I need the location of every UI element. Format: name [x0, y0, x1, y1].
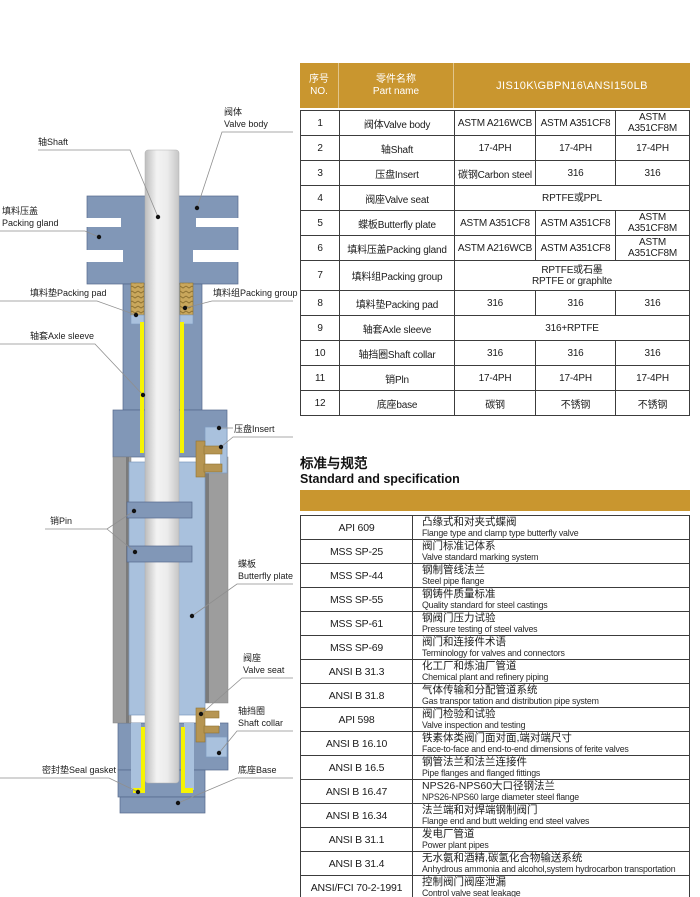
parts-cell-material: ASTM A216WCB — [455, 111, 536, 135]
parts-cell-no: 2 — [301, 136, 340, 160]
parts-cell-material: 17-4PH — [455, 136, 536, 160]
standards-code: ANSI/FCI 70-2-1991 — [301, 876, 413, 897]
standards-desc-en: Valve inspection and testing — [422, 720, 689, 730]
standards-desc-zh: 凸缘式和对夹式蝶阀 — [422, 517, 689, 529]
standards-desc-zh: 发电厂管道 — [422, 829, 689, 841]
parts-cell-material: 碳钢Carbon steel — [455, 161, 536, 185]
standards-desc-en: Terminology for valves and connectors — [422, 648, 689, 658]
parts-cell-material: 316 — [616, 341, 689, 365]
standards-row: ANSI B 16.10铁素体类阀门面对面,端对端尺寸Face-to-face … — [301, 732, 689, 756]
standards-desc: 气体传输和分配管道系统Gas transpor tation and distr… — [413, 684, 689, 707]
parts-cell-name: 轴挡圈Shaft collar — [340, 341, 455, 365]
parts-cell-material-span: RPTFE或石墨RPTFE or graphlte — [455, 261, 689, 290]
standards-code: ANSI B 31.4 — [301, 852, 413, 875]
label-zh: 轴挡圈 — [238, 705, 283, 717]
standards-code: MSS SP-61 — [301, 612, 413, 635]
standards-desc-zh: 阀门检验和试验 — [422, 709, 689, 721]
header-name-en: Part name — [373, 86, 419, 98]
seal-gasket-shape — [181, 788, 193, 793]
label-en: Packing gland — [2, 217, 59, 229]
standards-desc: 钢制管线法兰Steel pipe flange — [413, 564, 689, 587]
standards-title-en: Standard and specification — [300, 472, 460, 487]
parts-table: 序号 NO. 零件名称 Part name JIS10K\GBPN16\ANSI… — [300, 63, 690, 416]
standards-row: MSS SP-61钢阀门压力试验Pressure testing of stee… — [301, 612, 689, 636]
standards-gold-bar — [300, 490, 690, 511]
parts-cell-name: 填料垫Packing pad — [340, 291, 455, 315]
standards-desc-zh: 化工厂和炼油厂管道 — [422, 661, 689, 673]
parts-cell-material: 316 — [616, 291, 689, 315]
parts-cell-material: ASTM A351CF8 — [536, 211, 616, 235]
diagram-label-valve-body: 阀体 Valve body — [224, 106, 268, 130]
diagram-label-butterfly-plate: 蝶板 Butterfly plate — [238, 558, 293, 582]
label-text: 底座Base — [238, 764, 277, 776]
standards-desc: 阀门和连接件术语Terminology for valves and conne… — [413, 636, 689, 659]
diagram-label-shaft: 轴Shaft — [38, 136, 68, 148]
parts-cell-material: 17-4PH — [455, 366, 536, 390]
parts-table-row: 3压盘Insert碳钢Carbon steel316316 — [301, 161, 689, 186]
label-en: Butterfly plate — [238, 570, 293, 582]
parts-cell-no: 3 — [301, 161, 340, 185]
standards-desc-en: Flange type and clamp type butterfly val… — [422, 528, 689, 538]
parts-cell-no: 9 — [301, 316, 340, 340]
standards-desc: 无水氨和酒精,碳氢化合物输送系统Anhydrous ammonia and al… — [413, 852, 689, 875]
parts-cell-no: 5 — [301, 211, 340, 235]
label-en: Valve seat — [243, 664, 284, 676]
label-en: Valve body — [224, 118, 268, 130]
standards-desc-zh: 钢阀门压力试验 — [422, 613, 689, 625]
standards-desc: 凸缘式和对夹式蝶阀Flange type and clamp type butt… — [413, 516, 689, 539]
label-en: Shaft collar — [238, 717, 283, 729]
parts-cell-material: 316 — [536, 161, 616, 185]
parts-cell-name: 阀座Valve seat — [340, 186, 455, 210]
standards-desc-zh: 铁素体类阀门面对面,端对端尺寸 — [422, 733, 689, 745]
parts-table-row: 1阀体Valve bodyASTM A216WCBASTM A351CF8AST… — [301, 111, 689, 136]
parts-cell-material: 不锈钢 — [536, 391, 616, 415]
standards-desc-zh: NPS26-NPS60大口径钢法兰 — [422, 781, 689, 793]
standards-code: ANSI B 31.3 — [301, 660, 413, 683]
parts-cell-name: 轴套Axle sleeve — [340, 316, 455, 340]
standards-code: API 598 — [301, 708, 413, 731]
shaft-shape — [145, 150, 179, 783]
standards-code: ANSI B 31.1 — [301, 828, 413, 851]
parts-table-row: 12底座base碳钢不锈钢不锈钢 — [301, 391, 689, 415]
parts-cell-material: ASTM A351CF8 — [536, 236, 616, 260]
parts-cell-name: 填料压盖Packing gland — [340, 236, 455, 260]
parts-cell-name: 销Pln — [340, 366, 455, 390]
standards-desc-zh: 阀门标准记体系 — [422, 541, 689, 553]
parts-cell-material: ASTM A351CF8 — [455, 211, 536, 235]
parts-cell-material: 不锈钢 — [616, 391, 689, 415]
parts-table-body: 1阀体Valve bodyASTM A216WCBASTM A351CF8AST… — [300, 110, 690, 416]
standards-row: MSS SP-44钢制管线法兰Steel pipe flange — [301, 564, 689, 588]
base-plate-shape — [120, 797, 205, 813]
standards-desc: 法兰端和对焊端钢制阀门Flange end and butt welding e… — [413, 804, 689, 827]
standards-desc-en: Power plant pipes — [422, 840, 689, 850]
parts-cell-material: 17-4PH — [536, 136, 616, 160]
standards-code: ANSI B 16.5 — [301, 756, 413, 779]
parts-table-row: 5蝶板Butterfly plateASTM A351CF8ASTM A351C… — [301, 211, 689, 236]
standards-code: ANSI B 16.34 — [301, 804, 413, 827]
standards-desc: 钢阀门压力试验Pressure testing of steel valves — [413, 612, 689, 635]
parts-cell-material: 316 — [616, 161, 689, 185]
parts-cell-material: 17-4PH — [536, 366, 616, 390]
standards-desc-en: Pipe flanges and flanged fittings — [422, 768, 689, 778]
header-name-zh: 零件名称 — [376, 74, 416, 86]
standards-row: MSS SP-55钢铸件质量标准Quality standard for ste… — [301, 588, 689, 612]
header-no-zh: 序号 — [309, 74, 329, 86]
header-no-en: NO. — [310, 86, 328, 98]
standards-desc: 化工厂和炼油厂管道Chemical plant and refinery pip… — [413, 660, 689, 683]
label-text: 轴Shaft — [38, 136, 68, 148]
diagram-label-pin: 销Pin — [50, 515, 72, 527]
standards-code: MSS SP-55 — [301, 588, 413, 611]
parts-cell-no: 4 — [301, 186, 340, 210]
parts-table-row: 8填料垫Packing pad316316316 — [301, 291, 689, 316]
parts-cell-material: ASTM A351CF8M — [616, 236, 689, 260]
standards-row: MSS SP-25阀门标准记体系Valve standard marking s… — [301, 540, 689, 564]
standards-code: MSS SP-69 — [301, 636, 413, 659]
parts-cell-material: 316 — [536, 291, 616, 315]
standards-desc-en: Flange end and butt welding end steel va… — [422, 816, 689, 826]
standards-row: MSS SP-69阀门和连接件术语Terminology for valves … — [301, 636, 689, 660]
label-zh: 填料压盖 — [2, 205, 59, 217]
parts-cell-no: 6 — [301, 236, 340, 260]
standards-desc: 钢铸件质量标准Quality standard for steel castin… — [413, 588, 689, 611]
parts-cell-material: 316 — [455, 291, 536, 315]
standards-desc: NPS26-NPS60大口径钢法兰NPS26-NPS60 large diame… — [413, 780, 689, 803]
standards-desc: 铁素体类阀门面对面,端对端尺寸Face-to-face and end-to-e… — [413, 732, 689, 755]
standards-desc-zh: 控制阀门阀座泄漏 — [422, 877, 689, 889]
standards-row: ANSI B 31.8气体传输和分配管道系统Gas transpor tatio… — [301, 684, 689, 708]
parts-cell-no: 11 — [301, 366, 340, 390]
parts-cell-name: 阀体Valve body — [340, 111, 455, 135]
standards-desc-zh: 无水氨和酒精,碳氢化合物输送系统 — [422, 853, 689, 865]
span-line: 316+RPTFE — [545, 323, 599, 334]
standards-row: API 609凸缘式和对夹式蝶阀Flange type and clamp ty… — [301, 516, 689, 540]
standards-row: ANSI B 31.4无水氨和酒精,碳氢化合物输送系统Anhydrous amm… — [301, 852, 689, 876]
span-line: RPTFE或石墨 — [541, 265, 602, 276]
label-zh: 阀体 — [224, 106, 268, 118]
parts-header-part-name: 零件名称 Part name — [339, 63, 454, 108]
insert-shape — [196, 441, 222, 477]
diagram-label-packing-group: 填料组Packing group — [213, 287, 298, 299]
diagram-label-seal-gasket: 密封垫Seal gasket — [42, 764, 116, 776]
parts-table-row: 11销Pln17-4PH17-4PH17-4PH — [301, 366, 689, 391]
parts-table-row: 10轴挡圈Shaft collar316316316 — [301, 341, 689, 366]
label-text: 密封垫Seal gasket — [42, 764, 116, 776]
standards-table-body: API 609凸缘式和对夹式蝶阀Flange type and clamp ty… — [301, 516, 689, 897]
standards-title-zh: 标准与规范 — [300, 456, 460, 472]
parts-cell-material: 316 — [455, 341, 536, 365]
standards-row: API 598阀门检验和试验Valve inspection and testi… — [301, 708, 689, 732]
standards-code: ANSI B 31.8 — [301, 684, 413, 707]
parts-cell-no: 1 — [301, 111, 340, 135]
standards-desc: 控制阀门阀座泄漏Control valve seat leakage — [413, 876, 689, 897]
standards-desc-en: Steel pipe flange — [422, 576, 689, 586]
standards-desc: 钢管法兰和法兰连接件Pipe flanges and flanged fitti… — [413, 756, 689, 779]
standards-row: ANSI B 16.34法兰端和对焊端钢制阀门Flange end and bu… — [301, 804, 689, 828]
label-text: 销Pin — [50, 515, 72, 527]
standards-code: API 609 — [301, 516, 413, 539]
parts-cell-no: 7 — [301, 261, 340, 290]
standards-code: ANSI B 16.47 — [301, 780, 413, 803]
valve-cross-section-art — [0, 0, 298, 897]
label-text: 填料组Packing group — [213, 287, 298, 299]
parts-cell-material: ASTM A351CF8M — [616, 211, 689, 235]
label-text: 压盘Insert — [234, 423, 275, 435]
parts-cell-name: 轴Shaft — [340, 136, 455, 160]
standards-desc-zh: 钢制管线法兰 — [422, 565, 689, 577]
standards-desc-en: Valve standard marking system — [422, 552, 689, 562]
parts-table-row: 9轴套Axle sleeve316+RPTFE — [301, 316, 689, 341]
parts-cell-material: 碳钢 — [455, 391, 536, 415]
label-text: 轴套Axle sleeve — [30, 330, 94, 342]
standards-heading: 标准与规范 Standard and specification — [300, 456, 460, 487]
standards-desc-en: Quality standard for steel castings — [422, 600, 689, 610]
label-text: 填料垫Packing pad — [30, 287, 107, 299]
parts-table-header: 序号 NO. 零件名称 Part name JIS10K\GBPN16\ANSI… — [300, 63, 690, 108]
standards-desc: 阀门标准记体系Valve standard marking system — [413, 540, 689, 563]
diagram-label-axle-sleeve: 轴套Axle sleeve — [30, 330, 94, 342]
standards-desc-zh: 钢管法兰和法兰连接件 — [422, 757, 689, 769]
label-zh: 蝶板 — [238, 558, 293, 570]
parts-header-no: 序号 NO. — [300, 63, 339, 108]
parts-cell-material: 316 — [536, 341, 616, 365]
standards-desc-en: Control valve seat leakage — [422, 888, 689, 897]
standards-row: ANSI B 16.47NPS26-NPS60大口径钢法兰NPS26-NPS60… — [301, 780, 689, 804]
standards-desc-en: Face-to-face and end-to-end dimensions o… — [422, 744, 689, 754]
diagram-label-packing-gland: 填料压盖 Packing gland — [2, 205, 59, 229]
standards-row: ANSI B 16.5钢管法兰和法兰连接件Pipe flanges and fl… — [301, 756, 689, 780]
parts-table-row: 6填料压盖Packing glandASTM A216WCBASTM A351C… — [301, 236, 689, 261]
parts-cell-name: 底座base — [340, 391, 455, 415]
header-spec-text: JIS10K\GBPN16\ANSI150LB — [496, 80, 648, 92]
standards-code: MSS SP-44 — [301, 564, 413, 587]
parts-header-spec: JIS10K\GBPN16\ANSI150LB — [454, 63, 690, 108]
diagram-label-insert: 压盘Insert — [234, 423, 275, 435]
standards-row: ANSI/FCI 70-2-1991控制阀门阀座泄漏Control valve … — [301, 876, 689, 897]
parts-table-row: 4阀座Valve seatRPTFE或PPL — [301, 186, 689, 211]
catalog-page: 阀体 Valve body 轴Shaft 填料压盖 Packing gland … — [0, 0, 700, 897]
standards-desc-zh: 法兰端和对焊端钢制阀门 — [422, 805, 689, 817]
parts-cell-material: ASTM A351CF8M — [616, 111, 689, 135]
diagram-label-shaft-collar: 轴挡圈 Shaft collar — [238, 705, 283, 729]
standards-row: ANSI B 31.3化工厂和炼油厂管道Chemical plant and r… — [301, 660, 689, 684]
diagram-label-base: 底座Base — [238, 764, 277, 776]
parts-cell-material-span: RPTFE或PPL — [455, 186, 689, 210]
parts-cell-material: 17-4PH — [616, 366, 689, 390]
valve-diagram: 阀体 Valve body 轴Shaft 填料压盖 Packing gland … — [0, 0, 298, 897]
standards-table: API 609凸缘式和对夹式蝶阀Flange type and clamp ty… — [300, 515, 690, 897]
parts-cell-no: 8 — [301, 291, 340, 315]
parts-cell-name: 蝶板Butterfly plate — [340, 211, 455, 235]
standards-desc-en: NPS26-NPS60 large diameter steel flange — [422, 792, 689, 802]
standards-desc: 发电厂管道Power plant pipes — [413, 828, 689, 851]
parts-table-row: 2轴Shaft17-4PH17-4PH17-4PH — [301, 136, 689, 161]
standards-desc-en: Gas transpor tation and distribution pip… — [422, 696, 689, 706]
standards-desc-zh: 气体传输和分配管道系统 — [422, 685, 689, 697]
standards-code: MSS SP-25 — [301, 540, 413, 563]
parts-cell-material: 17-4PH — [616, 136, 689, 160]
diagram-label-valve-seat: 阀座 Valve seat — [243, 652, 284, 676]
standards-row: ANSI B 31.1发电厂管道Power plant pipes — [301, 828, 689, 852]
parts-cell-name: 填料组Packing group — [340, 261, 455, 290]
span-line: RPTFE或PPL — [542, 193, 602, 204]
standards-desc-en: Chemical plant and refinery piping — [422, 672, 689, 682]
parts-table-row: 7填料组Packing groupRPTFE或石墨RPTFE or graphl… — [301, 261, 689, 291]
span-line: RPTFE or graphlte — [532, 276, 612, 287]
standards-desc-zh: 阀门和连接件术语 — [422, 637, 689, 649]
standards-desc-en: Pressure testing of steel valves — [422, 624, 689, 634]
standards-code: ANSI B 16.10 — [301, 732, 413, 755]
diagram-label-packing-pad: 填料垫Packing pad — [30, 287, 107, 299]
parts-cell-material: ASTM A216WCB — [455, 236, 536, 260]
standards-desc-en: Anhydrous ammonia and alcohol,system hyd… — [422, 864, 689, 874]
standards-desc-zh: 钢铸件质量标准 — [422, 589, 689, 601]
parts-cell-name: 压盘Insert — [340, 161, 455, 185]
standards-desc: 阀门检验和试验Valve inspection and testing — [413, 708, 689, 731]
parts-cell-material-span: 316+RPTFE — [455, 316, 689, 340]
parts-cell-material: ASTM A351CF8 — [536, 111, 616, 135]
parts-cell-no: 10 — [301, 341, 340, 365]
parts-cell-no: 12 — [301, 391, 340, 415]
label-zh: 阀座 — [243, 652, 284, 664]
